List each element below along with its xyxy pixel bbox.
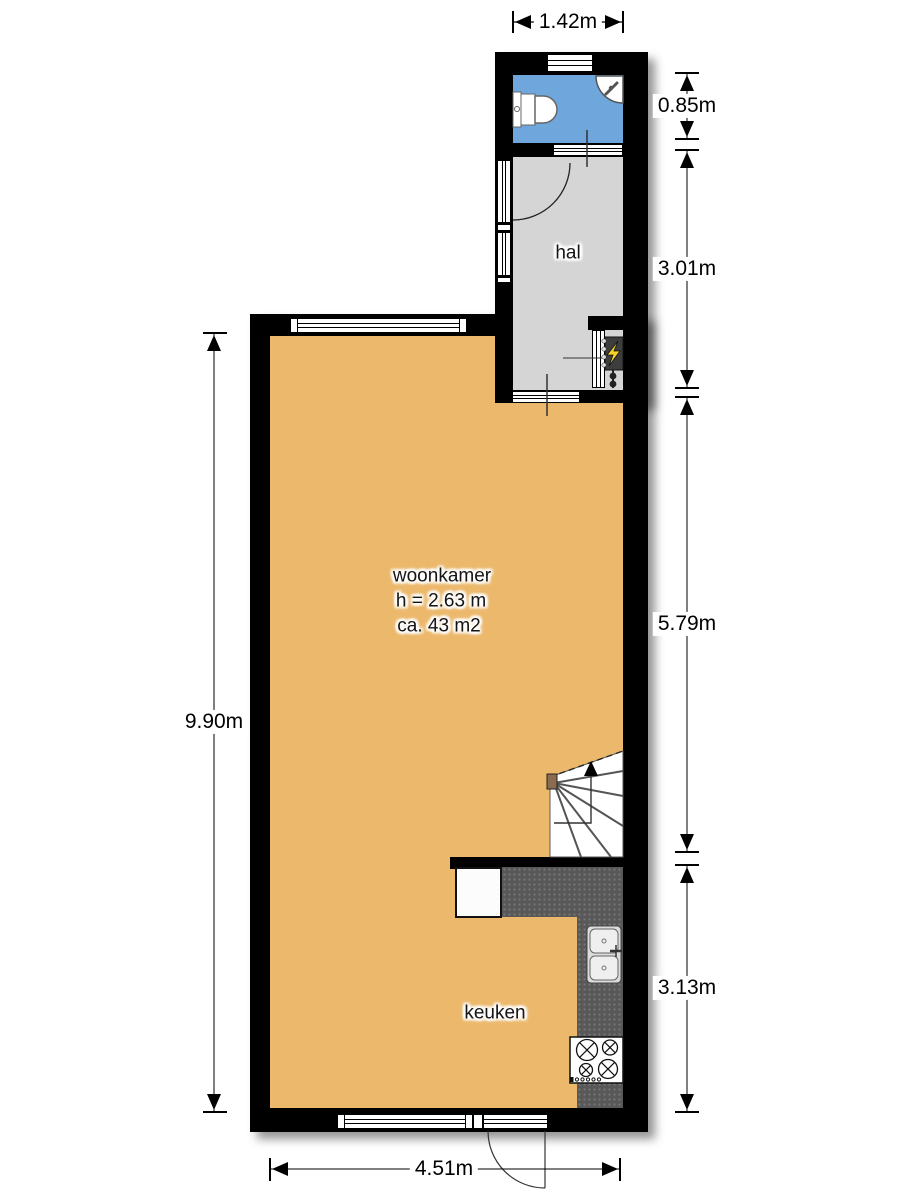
dimension-label-right-3: 3.13m	[653, 976, 721, 1000]
dimension-label-right-0: 0.85m	[653, 94, 721, 118]
dimension-label-bottom: 4.51m	[410, 1157, 478, 1181]
dimension-label-top: 1.42m	[534, 10, 602, 34]
woonkamer-area-label: ca. 43 m2	[397, 616, 480, 639]
kitchen-sink	[587, 926, 622, 983]
toilet-fixture	[513, 92, 557, 127]
woonkamer-height-label: h = 2.63 m	[396, 591, 486, 614]
stove	[570, 1037, 623, 1083]
back-door-swing	[488, 1131, 545, 1188]
dimension-label-right-2: 5.79m	[653, 612, 721, 636]
floor-plan: 1.42m 9.90m 0.85m 3.01m 5.79m 3.13m 4.51…	[0, 0, 900, 1200]
corner-sink	[596, 76, 623, 103]
stair-post	[547, 774, 557, 789]
staircase	[547, 751, 623, 857]
dimension-label-left: 9.90m	[180, 710, 248, 734]
meter-box	[563, 337, 623, 388]
hal-label: hal	[555, 243, 580, 266]
keuken-label: keuken	[464, 1003, 525, 1026]
woonkamer-label: woonkamer	[393, 566, 491, 589]
dimension-label-right-1: 3.01m	[653, 257, 721, 281]
front-door-swing-arc	[513, 163, 570, 220]
